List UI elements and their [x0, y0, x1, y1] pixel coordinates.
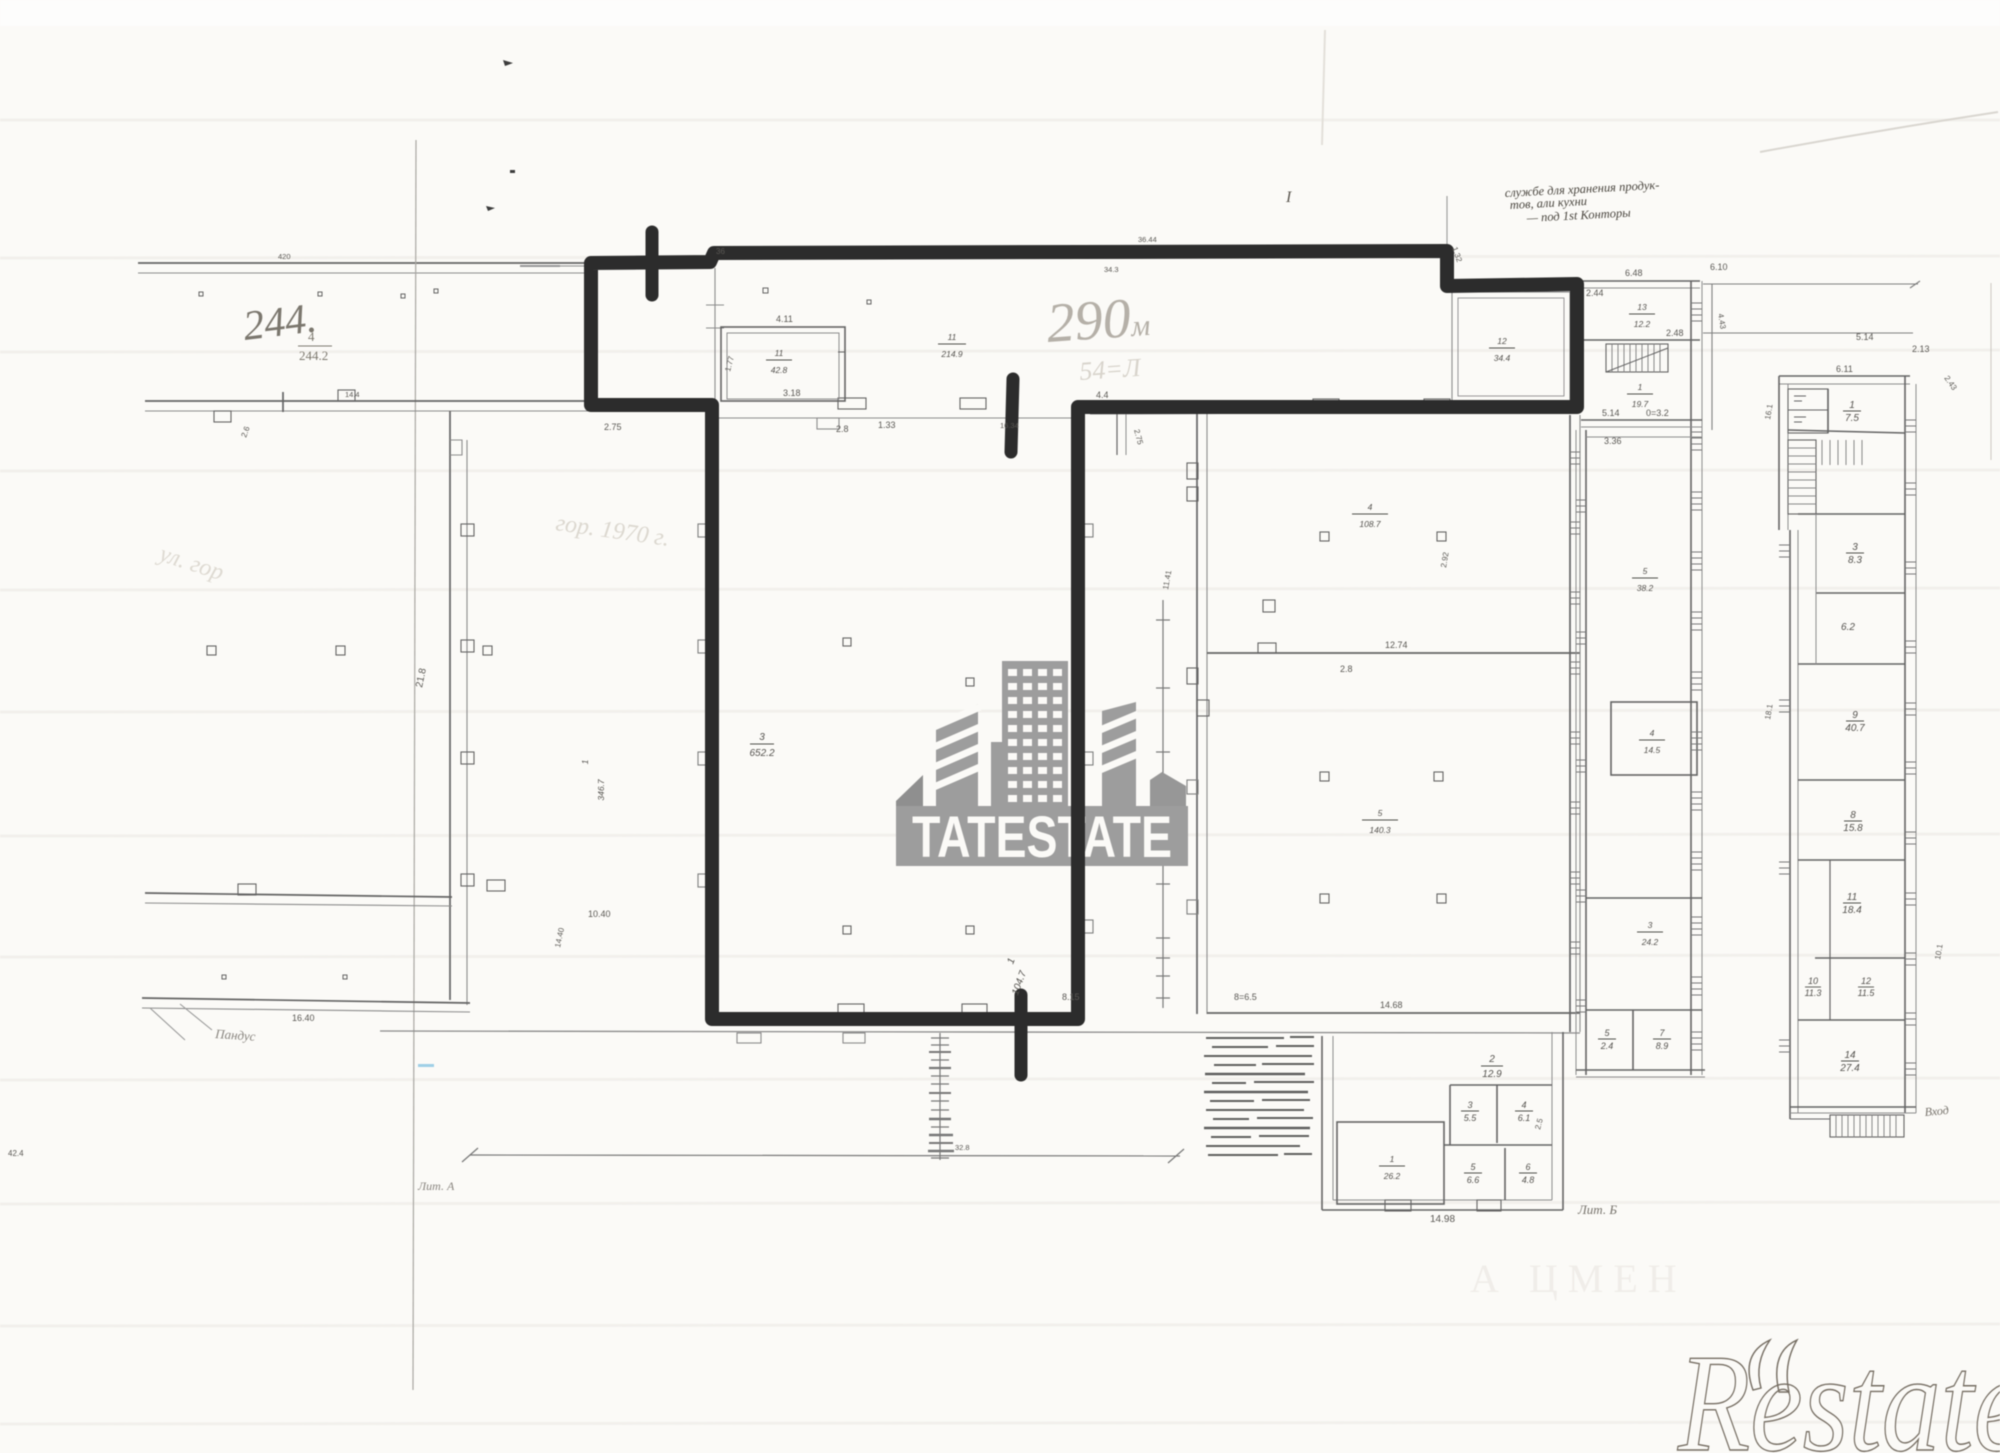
- svg-text:11: 11: [948, 332, 957, 342]
- svg-text:1: 1: [1849, 400, 1855, 411]
- svg-text:19.7: 19.7: [1632, 399, 1649, 409]
- svg-text:32.8: 32.8: [955, 1143, 970, 1152]
- svg-text:420: 420: [278, 252, 291, 261]
- svg-text:6.10: 6.10: [1710, 262, 1728, 272]
- svg-text:2.75: 2.75: [604, 422, 622, 432]
- svg-text:140.3: 140.3: [1369, 825, 1391, 835]
- svg-text:12.2: 12.2: [1634, 319, 1651, 329]
- svg-text:12: 12: [1861, 976, 1871, 986]
- svg-text:24.2: 24.2: [1641, 937, 1659, 947]
- svg-text:42.4: 42.4: [8, 1149, 24, 1158]
- svg-text:Вход: Вход: [1924, 1103, 1949, 1119]
- svg-text:12: 12: [1497, 336, 1507, 346]
- svg-text:TATESTATE: TATESTATE: [912, 805, 1172, 870]
- svg-text:Restate: Restate: [1677, 1326, 2000, 1453]
- svg-text:8.3: 8.3: [1848, 555, 1862, 566]
- svg-text:I: I: [1285, 189, 1292, 206]
- svg-text:8.9: 8.9: [1656, 1041, 1669, 1051]
- svg-text:6: 6: [1525, 1162, 1530, 1172]
- svg-text:2.44: 2.44: [1586, 288, 1604, 298]
- svg-text:8: 8: [1850, 810, 1856, 821]
- svg-text:3: 3: [1648, 920, 1653, 930]
- svg-text:14.4: 14.4: [345, 390, 360, 399]
- svg-text:36.44: 36.44: [1138, 235, 1157, 244]
- svg-text:1.33: 1.33: [878, 420, 896, 430]
- svg-text:6.11: 6.11: [1836, 364, 1853, 374]
- svg-text:36: 36: [716, 247, 725, 256]
- svg-text:16.40: 16.40: [292, 1013, 315, 1023]
- svg-text:244.2: 244.2: [299, 348, 328, 363]
- svg-text:15.8: 15.8: [1843, 823, 1863, 834]
- svg-text:1: 1: [1638, 382, 1643, 392]
- svg-text:6.6: 6.6: [1467, 1175, 1480, 1185]
- svg-text:26.2: 26.2: [1383, 1171, 1401, 1181]
- svg-text:346.7: 346.7: [596, 779, 606, 801]
- svg-text:4.8: 4.8: [1522, 1175, 1535, 1185]
- svg-text:14.68: 14.68: [1380, 1000, 1403, 1010]
- svg-text:10: 10: [1808, 976, 1818, 986]
- svg-text:11: 11: [1847, 892, 1857, 903]
- svg-text:38.2: 38.2: [1637, 583, 1654, 593]
- svg-text:12.74: 12.74: [1385, 640, 1408, 650]
- svg-text:14: 14: [1844, 1050, 1856, 1061]
- svg-text:4: 4: [308, 329, 315, 344]
- svg-text:9: 9: [1852, 710, 1858, 721]
- svg-text:13: 13: [1637, 302, 1647, 312]
- svg-text:3: 3: [759, 732, 765, 743]
- svg-text:4: 4: [1650, 728, 1655, 738]
- svg-text:2.4: 2.4: [1600, 1041, 1614, 1051]
- svg-text:3: 3: [1852, 542, 1858, 553]
- svg-text:14.5: 14.5: [1644, 745, 1661, 755]
- svg-text:2: 2: [1488, 1054, 1495, 1065]
- svg-text:40.7: 40.7: [1845, 723, 1865, 734]
- svg-text:2.13: 2.13: [1912, 344, 1930, 354]
- svg-text:4: 4: [1521, 1100, 1526, 1110]
- svg-text:5: 5: [1643, 566, 1648, 576]
- svg-text:14.98: 14.98: [1430, 1214, 1455, 1225]
- svg-text:8.15: 8.15: [1062, 992, 1080, 1002]
- svg-text:Лит. Б: Лит. Б: [1577, 1202, 1617, 1217]
- svg-text:16.34: 16.34: [1000, 421, 1019, 430]
- svg-text:6.48: 6.48: [1625, 268, 1643, 278]
- svg-text:54=Л: 54=Л: [1078, 353, 1142, 386]
- svg-text:18.4: 18.4: [1842, 905, 1862, 916]
- svg-text:4.11: 4.11: [776, 314, 793, 324]
- svg-text:11.3: 11.3: [1805, 988, 1822, 998]
- svg-text:3.18: 3.18: [783, 388, 801, 398]
- svg-text:34.4: 34.4: [1494, 353, 1511, 363]
- svg-text:34.3: 34.3: [1104, 265, 1119, 274]
- svg-text:5: 5: [1378, 808, 1383, 818]
- svg-text:1: 1: [1390, 1154, 1395, 1164]
- svg-text:652.2: 652.2: [749, 748, 774, 759]
- svg-text:2.48: 2.48: [1666, 328, 1684, 338]
- svg-text:8=6.5: 8=6.5: [1234, 992, 1257, 1002]
- svg-text:4.4: 4.4: [1096, 390, 1109, 400]
- svg-text:2.8: 2.8: [1340, 664, 1353, 674]
- svg-text:11.5: 11.5: [1858, 988, 1876, 998]
- svg-text:214.9: 214.9: [940, 349, 963, 359]
- svg-text:27.4: 27.4: [1839, 1063, 1860, 1074]
- svg-text:11: 11: [775, 348, 784, 358]
- svg-text:0=3.2: 0=3.2: [1646, 408, 1669, 418]
- svg-text:6.1: 6.1: [1518, 1113, 1531, 1123]
- svg-text:3.36: 3.36: [1604, 436, 1622, 446]
- svg-text:108.7: 108.7: [1359, 519, 1381, 529]
- svg-text:6.2: 6.2: [1841, 622, 1855, 633]
- svg-text:5.14: 5.14: [1856, 332, 1874, 342]
- svg-text:Лит. А: Лит. А: [417, 1179, 455, 1193]
- svg-text:12.9: 12.9: [1482, 1069, 1502, 1080]
- svg-text:2.8: 2.8: [836, 424, 849, 434]
- svg-text:А ЦМЕН: А ЦМЕН: [1470, 1256, 1687, 1301]
- svg-text:5.5: 5.5: [1464, 1113, 1478, 1123]
- svg-text:1: 1: [580, 759, 590, 764]
- svg-text:10.40: 10.40: [588, 909, 611, 919]
- svg-text:5.14: 5.14: [1602, 408, 1620, 418]
- svg-text:Пандус: Пандус: [214, 1026, 256, 1044]
- svg-text:4: 4: [1368, 502, 1373, 512]
- svg-text:7.5: 7.5: [1845, 413, 1859, 424]
- svg-text:42.8: 42.8: [771, 365, 788, 375]
- svg-text:3: 3: [1467, 1100, 1472, 1110]
